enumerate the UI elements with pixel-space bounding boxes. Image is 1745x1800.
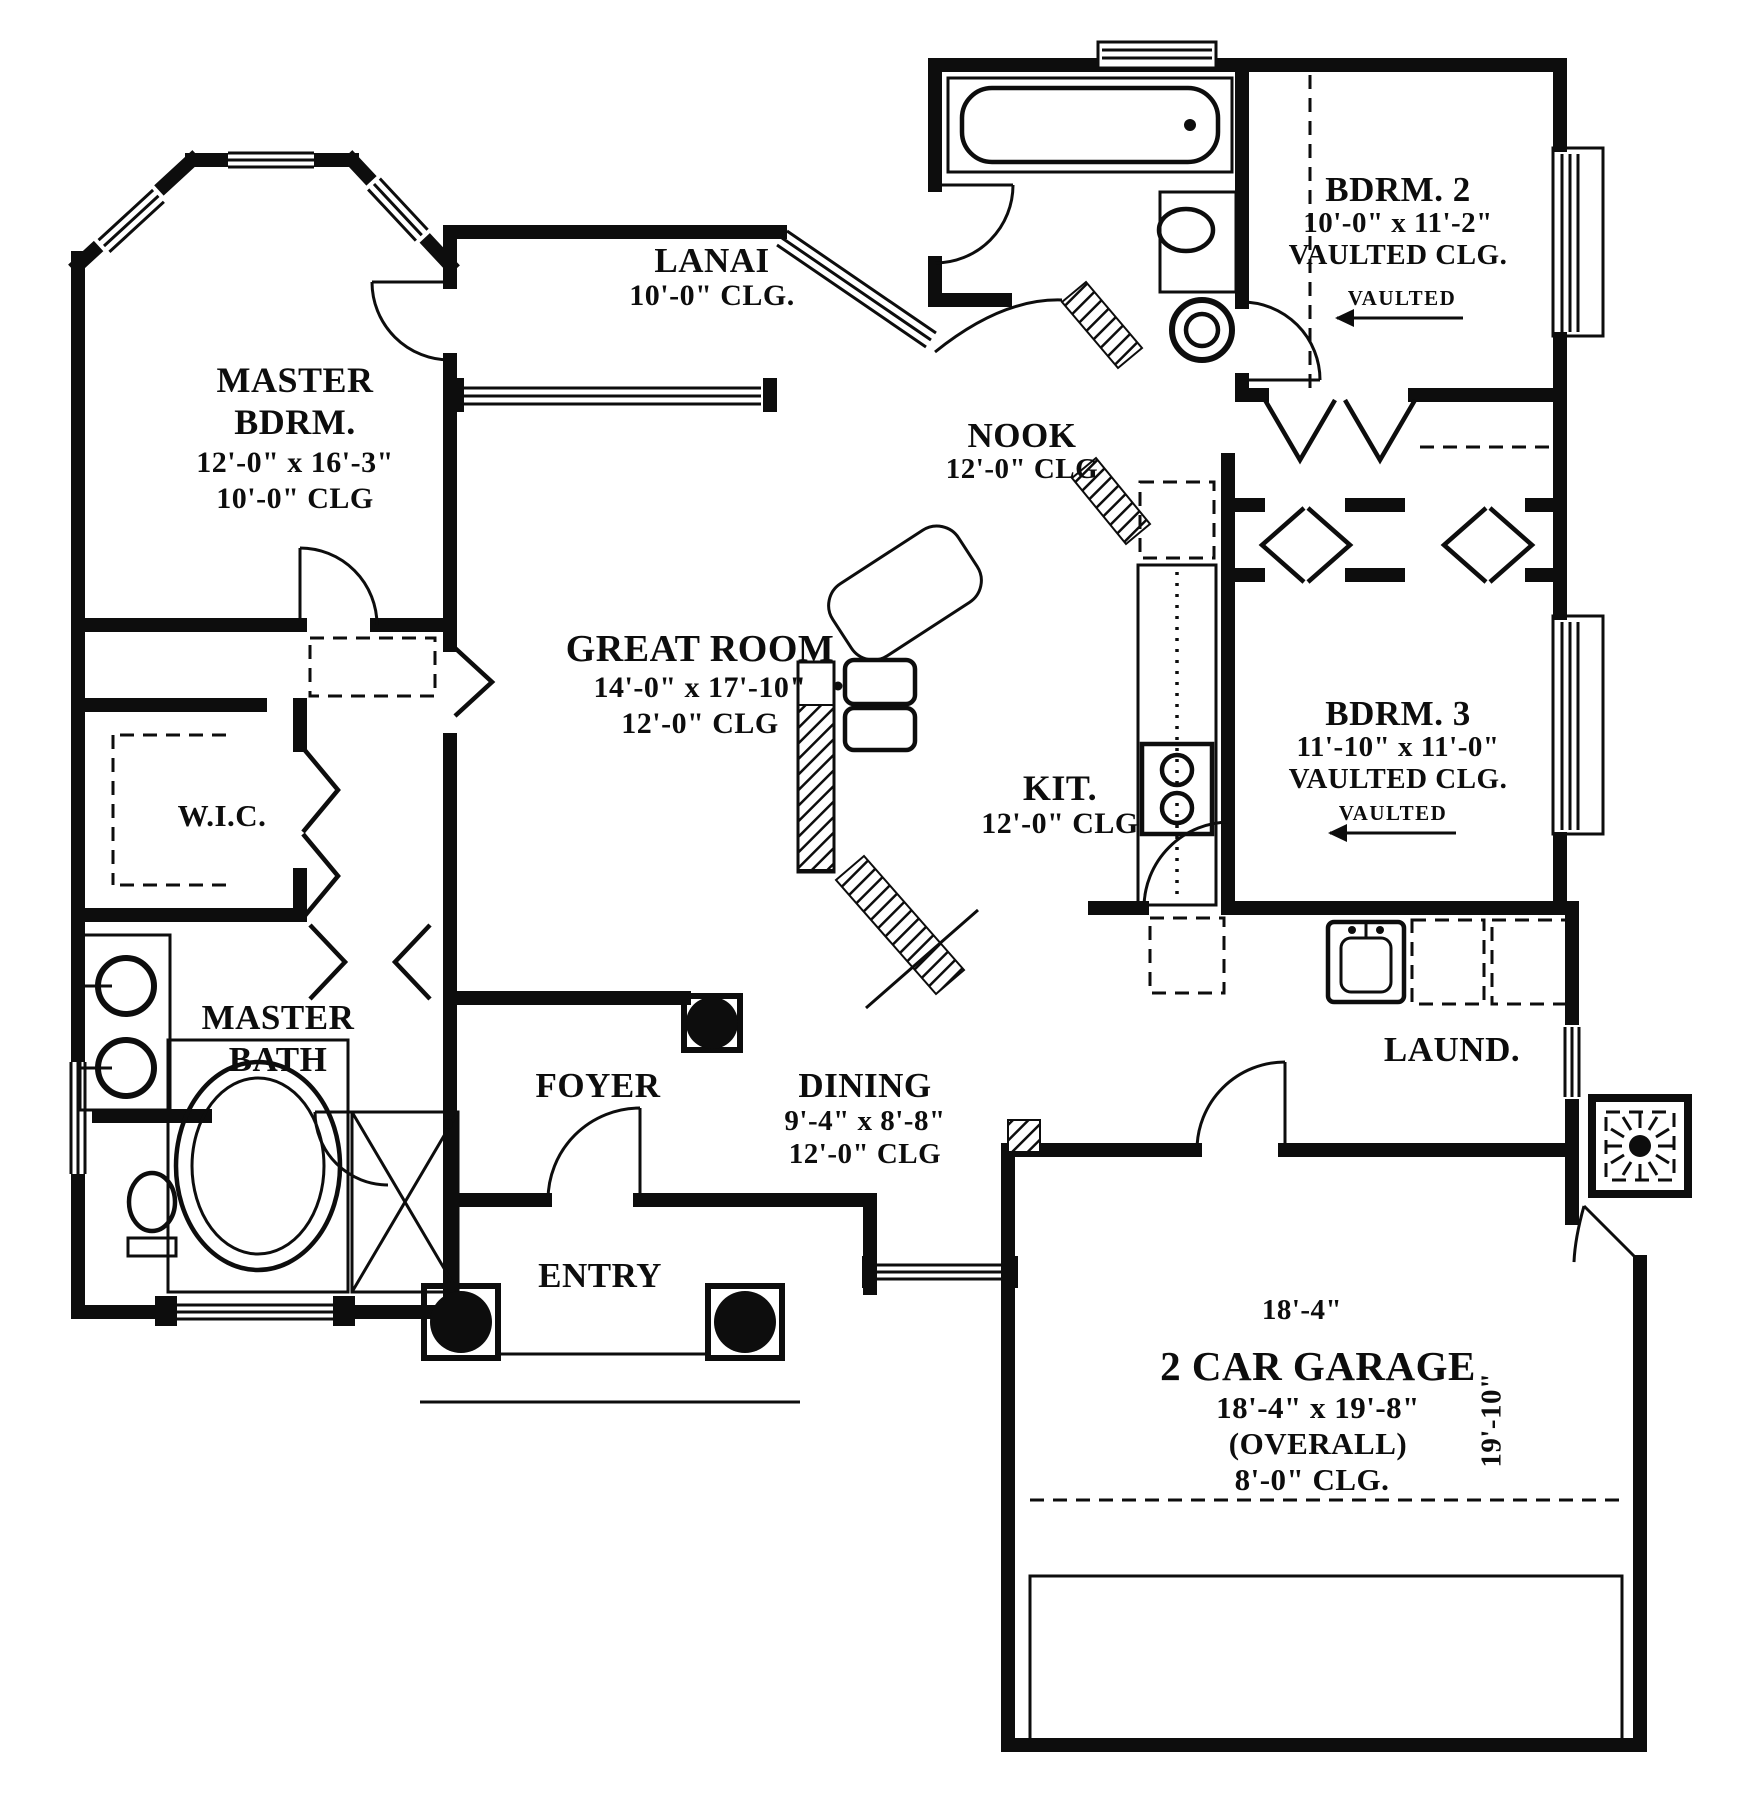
kitchen-label: KIT.	[1023, 770, 1097, 806]
bedroom2-ceiling: VAULTED CLG.	[1289, 241, 1508, 270]
master-bedroom-ceiling: 10'-0" CLG	[216, 484, 374, 514]
washer	[1412, 920, 1484, 1004]
foyer-label: FOYER	[536, 1068, 661, 1103]
entry-label: ENTRY	[538, 1258, 662, 1293]
island-counter	[819, 516, 992, 670]
master-bath-label2: BATH	[229, 1042, 328, 1077]
bedroom2-vaulted-tag: VAULTED	[1348, 288, 1457, 309]
kitchen-fixtures	[798, 482, 1224, 1008]
floor-plan-page: MASTER BDRM. 12'-0" x 16'-3" 10'-0" CLG …	[0, 0, 1745, 1800]
garage-door-recess	[1030, 1576, 1622, 1742]
garage-label: 2 CAR GARAGE	[1160, 1346, 1476, 1387]
ac-unit	[1592, 1098, 1688, 1194]
master-bedroom-label2: BDRM.	[234, 404, 356, 440]
walk-in-closet-label: W.I.C.	[178, 800, 267, 831]
garage-dimensions: 18'-4" x 19'-8"	[1216, 1392, 1420, 1423]
garage-depth-dimension: 19'-10"	[1478, 1372, 1507, 1467]
bedroom3-vaulted-tag: VAULTED	[1339, 803, 1448, 824]
dining-ceiling: 12'-0" CLG	[789, 1140, 941, 1169]
kitchen-sink	[845, 660, 915, 704]
dining-label: DINING	[798, 1068, 931, 1103]
nook-ceiling: 12'-0" CLG	[946, 455, 1098, 484]
master-bath-label: MASTER	[202, 1000, 355, 1035]
great-room-label: GREAT ROOM	[566, 630, 835, 668]
bedroom3-label: BDRM. 3	[1325, 696, 1470, 731]
dryer	[1492, 920, 1568, 1004]
vanity-counter	[80, 935, 170, 1110]
bedroom2-label: BDRM. 2	[1325, 172, 1470, 207]
master-bedroom-label: MASTER	[216, 362, 373, 398]
garage-overall: (OVERALL)	[1229, 1428, 1407, 1459]
lanai-label: LANAI	[654, 243, 769, 278]
great-room-ceiling: 12'-0" CLG	[621, 709, 779, 739]
garage-elements	[1030, 1500, 1622, 1742]
bedroom2-dimensions: 10'-0" x 11'-2"	[1303, 209, 1493, 238]
laundry-fixtures	[1328, 920, 1568, 1004]
garage-ceiling: 8'-0" CLG.	[1235, 1464, 1390, 1495]
entry-column	[430, 1291, 492, 1353]
garden-tub	[176, 1062, 340, 1270]
refrigerator	[1150, 918, 1224, 993]
master-bedroom-dimensions: 12'-0" x 16'-3"	[196, 448, 393, 478]
great-room-dimensions: 14'-0" x 17'-10"	[594, 673, 807, 703]
dining-dimensions: 9'-4" x 8'-8"	[784, 1107, 945, 1136]
kitchen-ceiling: 12'-0" CLG	[981, 809, 1139, 839]
pantry	[1140, 482, 1214, 558]
entry-column	[714, 1291, 776, 1353]
bath2-sink	[1159, 209, 1213, 251]
bath2-sink-counter	[1160, 192, 1236, 292]
nook-label: NOOK	[968, 418, 1077, 453]
bath2-toilet	[1172, 300, 1232, 360]
bedroom3-dimensions: 11'-10" x 11'-0"	[1297, 733, 1500, 762]
foyer-column	[686, 997, 738, 1049]
laundry-label: LAUND.	[1384, 1032, 1520, 1067]
bedroom3-ceiling: VAULTED CLG.	[1289, 765, 1508, 794]
garage-width-dimension: 18'-4"	[1262, 1296, 1342, 1325]
hatched-walls	[798, 282, 1150, 1152]
lanai-ceiling: 10'-0" CLG.	[629, 281, 795, 311]
range	[1142, 744, 1212, 834]
